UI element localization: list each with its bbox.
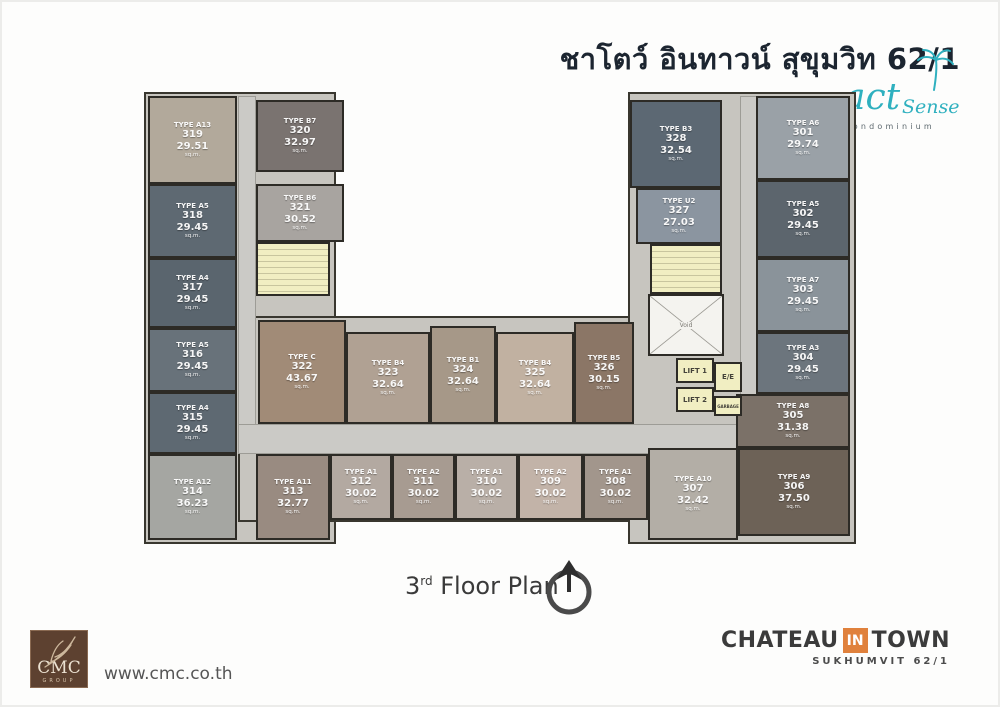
unit-314-area: 36.23 bbox=[177, 498, 209, 510]
cmc-leaf-icon bbox=[41, 635, 79, 669]
unit-303-unit: sq.m. bbox=[795, 307, 810, 313]
unit-319-unit: sq.m. bbox=[185, 152, 200, 158]
unit-310-area: 30.02 bbox=[471, 488, 503, 500]
unit-318-unit: sq.m. bbox=[185, 233, 200, 239]
unit-320-number: 320 bbox=[290, 125, 311, 137]
unit-318-area: 29.45 bbox=[177, 222, 209, 234]
brand-word-chateau: CHATEAU bbox=[721, 628, 839, 653]
unit-318: TYPE A531829.45sq.m. bbox=[148, 184, 237, 258]
unit-325: TYPE B432532.64sq.m. bbox=[496, 332, 574, 424]
unit-307: TYPE A1030732.42sq.m. bbox=[648, 448, 738, 540]
cmc-group-text: GROUP bbox=[43, 678, 76, 684]
unit-304: TYPE A330429.45sq.m. bbox=[756, 332, 850, 394]
unit-301: TYPE A630129.74sq.m. bbox=[756, 96, 850, 180]
lift-1-label: LIFT 1 bbox=[683, 367, 707, 375]
unit-316-number: 316 bbox=[182, 349, 203, 361]
unit-313: TYPE A1131332.77sq.m. bbox=[256, 454, 330, 540]
unit-304-area: 29.45 bbox=[787, 364, 819, 376]
unit-321-number: 321 bbox=[290, 202, 311, 214]
brand-in-box: IN bbox=[843, 628, 868, 653]
unit-324: TYPE B132432.64sq.m. bbox=[430, 326, 496, 424]
unit-306-area: 37.50 bbox=[778, 493, 810, 505]
unit-326-area: 30.15 bbox=[588, 374, 620, 386]
north-compass-icon bbox=[541, 558, 597, 618]
cmc-group-logo: CMC GROUP bbox=[30, 630, 88, 688]
unit-309-unit: sq.m. bbox=[543, 499, 558, 505]
unit-315-area: 29.45 bbox=[177, 424, 209, 436]
stairwell-right bbox=[650, 244, 722, 294]
floor-ordinal: rd bbox=[420, 574, 432, 588]
unit-323: TYPE B432332.64sq.m. bbox=[346, 332, 430, 424]
unit-307-unit: sq.m. bbox=[685, 506, 700, 512]
unit-324-number: 324 bbox=[453, 364, 474, 376]
unit-307-area: 32.42 bbox=[677, 495, 709, 507]
unit-313-area: 32.77 bbox=[277, 498, 309, 510]
unit-319-number: 319 bbox=[182, 129, 203, 141]
unit-314-unit: sq.m. bbox=[185, 509, 200, 515]
unit-304-number: 304 bbox=[793, 352, 814, 364]
unit-328-unit: sq.m. bbox=[668, 156, 683, 162]
unit-306: TYPE A930637.50sq.m. bbox=[738, 448, 850, 536]
unit-318-number: 318 bbox=[182, 210, 203, 222]
unit-308-unit: sq.m. bbox=[608, 499, 623, 505]
unit-317-area: 29.45 bbox=[177, 294, 209, 306]
unit-322-area: 43.67 bbox=[286, 373, 318, 385]
unit-313-unit: sq.m. bbox=[285, 509, 300, 515]
unit-310-number: 310 bbox=[476, 476, 497, 488]
corridor-left bbox=[238, 96, 256, 454]
unit-317: TYPE A431729.45sq.m. bbox=[148, 258, 237, 328]
unit-303-area: 29.45 bbox=[787, 296, 819, 308]
unit-327: TYPE U232727.03sq.m. bbox=[636, 188, 722, 244]
cmc-website: www.cmc.co.th bbox=[104, 664, 233, 684]
unit-308-area: 30.02 bbox=[600, 488, 632, 500]
unit-301-number: 301 bbox=[793, 127, 814, 139]
unit-324-area: 32.64 bbox=[447, 376, 479, 388]
unit-326-number: 326 bbox=[594, 362, 615, 374]
unit-309-area: 30.02 bbox=[535, 488, 567, 500]
chateau-in-town-logo: CHATEAU IN TOWN SUKHUMVIT 62/1 bbox=[721, 628, 950, 667]
unit-315: TYPE A431529.45sq.m. bbox=[148, 392, 237, 454]
unit-310: TYPE A131030.02sq.m. bbox=[455, 454, 518, 520]
electrical-room-label: E/E bbox=[722, 373, 734, 381]
unit-305-area: 31.38 bbox=[777, 422, 809, 434]
unit-312-number: 312 bbox=[351, 476, 372, 488]
unit-305-unit: sq.m. bbox=[785, 433, 800, 439]
unit-312-area: 30.02 bbox=[345, 488, 377, 500]
unit-325-number: 325 bbox=[525, 367, 546, 379]
unit-311-area: 30.02 bbox=[408, 488, 440, 500]
unit-323-unit: sq.m. bbox=[380, 390, 395, 396]
unit-303-number: 303 bbox=[793, 284, 814, 296]
unit-321-area: 30.52 bbox=[284, 214, 316, 226]
stairwell-left bbox=[256, 242, 330, 296]
unit-320-unit: sq.m. bbox=[292, 148, 307, 154]
lift-1: LIFT 1 bbox=[676, 358, 714, 383]
unit-322-number: 322 bbox=[292, 361, 313, 373]
garbage-room-label: GARBAGE bbox=[717, 404, 739, 409]
lift-2: LIFT 2 bbox=[676, 387, 714, 412]
unit-314-number: 314 bbox=[182, 486, 203, 498]
garbage-room: GARBAGE bbox=[714, 396, 742, 416]
unit-302-unit: sq.m. bbox=[795, 231, 810, 237]
unit-306-unit: sq.m. bbox=[786, 504, 801, 510]
unit-302-number: 302 bbox=[793, 208, 814, 220]
unit-317-unit: sq.m. bbox=[185, 305, 200, 311]
unit-309-number: 309 bbox=[540, 476, 561, 488]
act-sense-logo: act Sense Condominium bbox=[844, 58, 964, 136]
unit-302: TYPE A530229.45sq.m. bbox=[756, 180, 850, 258]
unit-311-number: 311 bbox=[413, 476, 434, 488]
unit-306-number: 306 bbox=[784, 481, 805, 493]
unit-327-unit: sq.m. bbox=[671, 228, 686, 234]
unit-304-unit: sq.m. bbox=[795, 375, 810, 381]
unit-316: TYPE A531629.45sq.m. bbox=[148, 328, 237, 392]
unit-308: TYPE A130830.02sq.m. bbox=[583, 454, 648, 520]
unit-305: TYPE A830531.38sq.m. bbox=[736, 394, 850, 448]
brand-word-town: TOWN bbox=[872, 628, 950, 653]
floor-text: Floor Plan bbox=[433, 572, 559, 600]
unit-327-number: 327 bbox=[669, 205, 690, 217]
unit-307-number: 307 bbox=[683, 483, 704, 495]
unit-309: TYPE A230930.02sq.m. bbox=[518, 454, 583, 520]
unit-328-number: 328 bbox=[666, 133, 687, 145]
unit-325-area: 32.64 bbox=[519, 379, 551, 391]
unit-322: TYPE C32243.67sq.m. bbox=[258, 320, 346, 424]
logo-word-sense: Sense bbox=[902, 96, 960, 118]
unit-311-unit: sq.m. bbox=[416, 499, 431, 505]
unit-321: TYPE B632130.52sq.m. bbox=[256, 184, 344, 242]
unit-310-unit: sq.m. bbox=[479, 499, 494, 505]
void-label: Void bbox=[678, 322, 695, 329]
unit-320: TYPE B732032.97sq.m. bbox=[256, 100, 344, 172]
unit-301-unit: sq.m. bbox=[795, 150, 810, 156]
palm-tree-icon bbox=[910, 46, 956, 92]
unit-312: TYPE A131230.02sq.m. bbox=[330, 454, 392, 520]
unit-316-area: 29.45 bbox=[177, 361, 209, 373]
unit-321-unit: sq.m. bbox=[292, 225, 307, 231]
unit-319: TYPE A1331929.51sq.m. bbox=[148, 96, 237, 184]
unit-313-number: 313 bbox=[283, 486, 304, 498]
unit-302-area: 29.45 bbox=[787, 220, 819, 232]
unit-326-unit: sq.m. bbox=[596, 385, 611, 391]
unit-305-number: 305 bbox=[783, 410, 804, 422]
unit-327-area: 27.03 bbox=[663, 217, 695, 229]
brand-subtitle: SUKHUMVIT 62/1 bbox=[721, 656, 950, 667]
unit-326: TYPE B532630.15sq.m. bbox=[574, 322, 634, 424]
unit-317-number: 317 bbox=[182, 282, 203, 294]
floor-plan-page: ชาโตว์ อินทาวน์ สุขุมวิท 62/1 act Sense … bbox=[0, 0, 1000, 707]
unit-315-unit: sq.m. bbox=[185, 435, 200, 441]
unit-324-unit: sq.m. bbox=[455, 387, 470, 393]
unit-316-unit: sq.m. bbox=[185, 372, 200, 378]
unit-312-unit: sq.m. bbox=[353, 499, 368, 505]
unit-319-area: 29.51 bbox=[177, 141, 209, 153]
electrical-room: E/E bbox=[714, 362, 742, 392]
lift-2-label: LIFT 2 bbox=[683, 396, 707, 404]
unit-315-number: 315 bbox=[182, 412, 203, 424]
unit-323-number: 323 bbox=[378, 367, 399, 379]
unit-323-area: 32.64 bbox=[372, 379, 404, 391]
unit-308-number: 308 bbox=[605, 476, 626, 488]
unit-303: TYPE A730329.45sq.m. bbox=[756, 258, 850, 332]
unit-314: TYPE A1231436.23sq.m. bbox=[148, 454, 237, 540]
floor-plan-label: 3rd Floor Plan bbox=[405, 572, 559, 600]
unit-328-area: 32.54 bbox=[660, 145, 692, 157]
floor-number: 3 bbox=[405, 572, 420, 600]
void-shaft: Void bbox=[648, 294, 724, 356]
logo-subtitle: Condominium bbox=[844, 122, 935, 131]
unit-325-unit: sq.m. bbox=[527, 390, 542, 396]
unit-311: TYPE A231130.02sq.m. bbox=[392, 454, 455, 520]
unit-301-area: 29.74 bbox=[787, 139, 819, 151]
unit-322-unit: sq.m. bbox=[294, 384, 309, 390]
unit-320-area: 32.97 bbox=[284, 137, 316, 149]
unit-328: TYPE B332832.54sq.m. bbox=[630, 100, 722, 188]
